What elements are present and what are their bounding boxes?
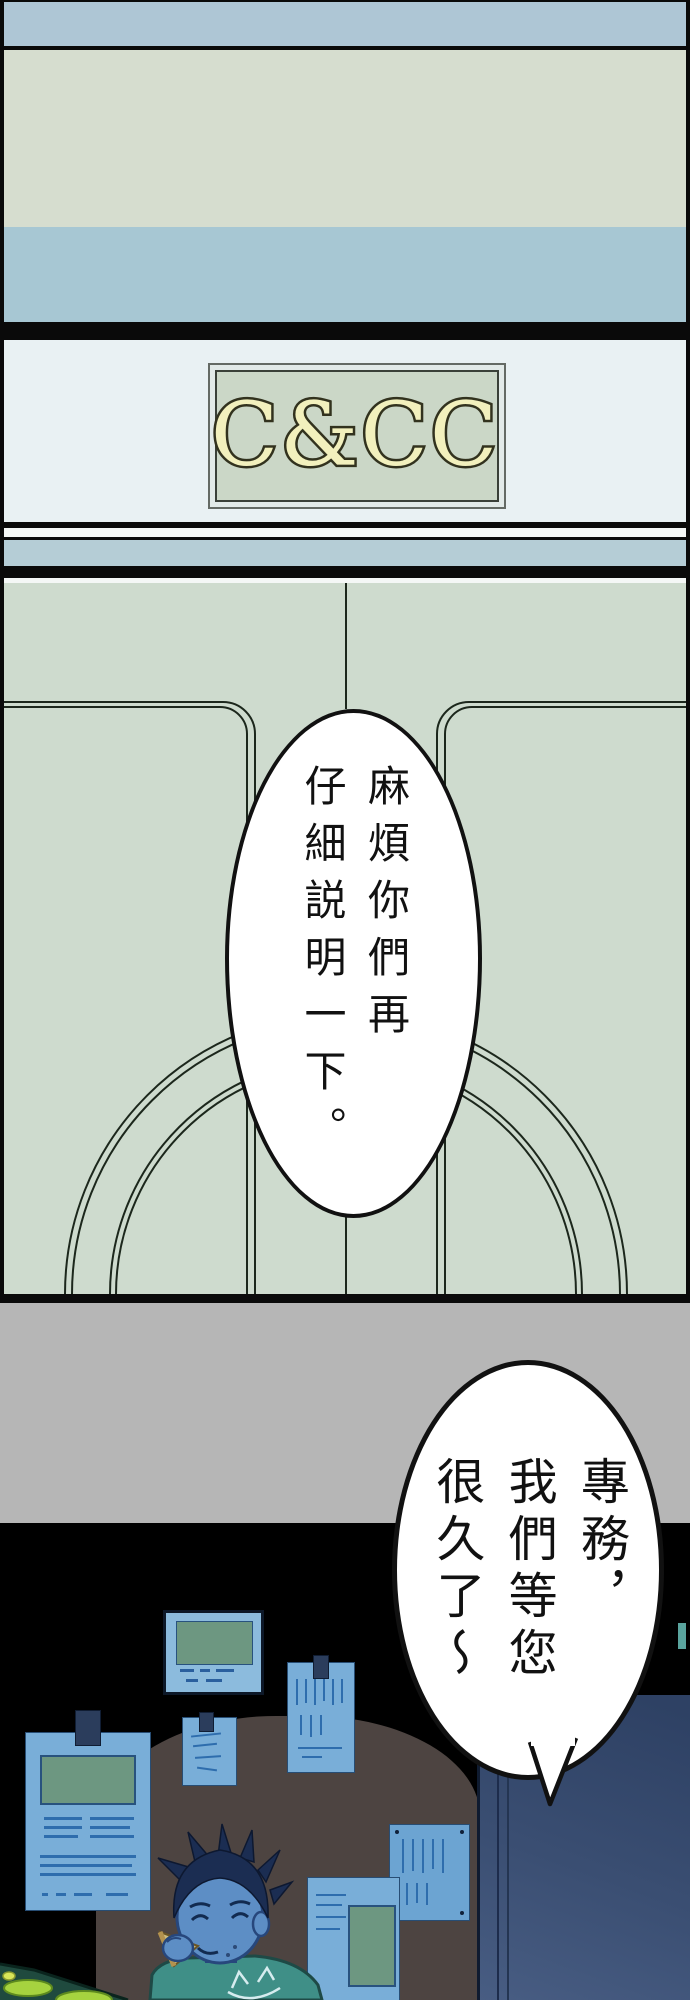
poster-clip — [75, 1710, 101, 1746]
speech-text-door: 麻煩你們再 仔細説明一下。 — [285, 764, 423, 1163]
right-border — [686, 0, 690, 1303]
desk-corner — [0, 1950, 130, 2000]
left-border — [0, 0, 4, 1303]
panel-bottom-line — [0, 1294, 690, 1303]
caption-mark — [216, 1669, 234, 1672]
comic-page: C&CC — [0, 0, 690, 2000]
facade-black-band — [0, 322, 690, 340]
caption-mark — [200, 1669, 210, 1672]
poster-photo — [40, 1755, 136, 1805]
poster-left — [26, 1733, 150, 1910]
speech-office-col-3: 很久了～ — [425, 1456, 486, 1684]
divider-white-1 — [0, 528, 690, 537]
sign-panel: C&CC — [0, 340, 690, 522]
speech-door-col-1: 麻煩你們再 — [359, 764, 412, 1163]
speech-office-col-2: 我們等您 — [497, 1456, 558, 1684]
speech-bubble-office: 專務， 我們等您 很久了～ — [392, 1360, 664, 1780]
speech-door-col-2: 仔細説明一下。 — [296, 764, 349, 1163]
speech-bubble-door: 麻煩你們再 仔細説明一下。 — [225, 709, 482, 1218]
door-hinge-highlight — [678, 1623, 686, 1649]
divider-blue-band — [0, 540, 690, 566]
plate — [4, 1980, 52, 1996]
awning-top-band — [0, 2, 690, 46]
poster-photo — [348, 1905, 396, 1987]
picture-image — [176, 1621, 253, 1665]
sign-letters: C&CC — [210, 365, 500, 493]
sign-text: C&CC — [211, 383, 499, 486]
note-clip — [199, 1712, 214, 1732]
caption-mark — [186, 1679, 198, 1682]
speech-text-office: 專務， 我們等您 很久了～ — [414, 1456, 642, 1684]
poster-center — [288, 1663, 354, 1772]
company-sign: C&CC — [208, 363, 506, 509]
man-eating-pizza — [140, 1820, 350, 2000]
framed-picture — [163, 1610, 264, 1695]
hand — [163, 1935, 193, 1961]
facade-blue-band — [0, 227, 690, 322]
speech-office-col-1: 專務， — [570, 1456, 631, 1684]
poster-clip — [313, 1655, 329, 1679]
lemon — [3, 1972, 15, 1980]
facade-pale-band — [0, 50, 690, 227]
caption-mark — [206, 1679, 222, 1682]
caption-mark — [180, 1669, 194, 1672]
poster-right — [390, 1825, 469, 1920]
divider-line-3 — [0, 566, 690, 578]
